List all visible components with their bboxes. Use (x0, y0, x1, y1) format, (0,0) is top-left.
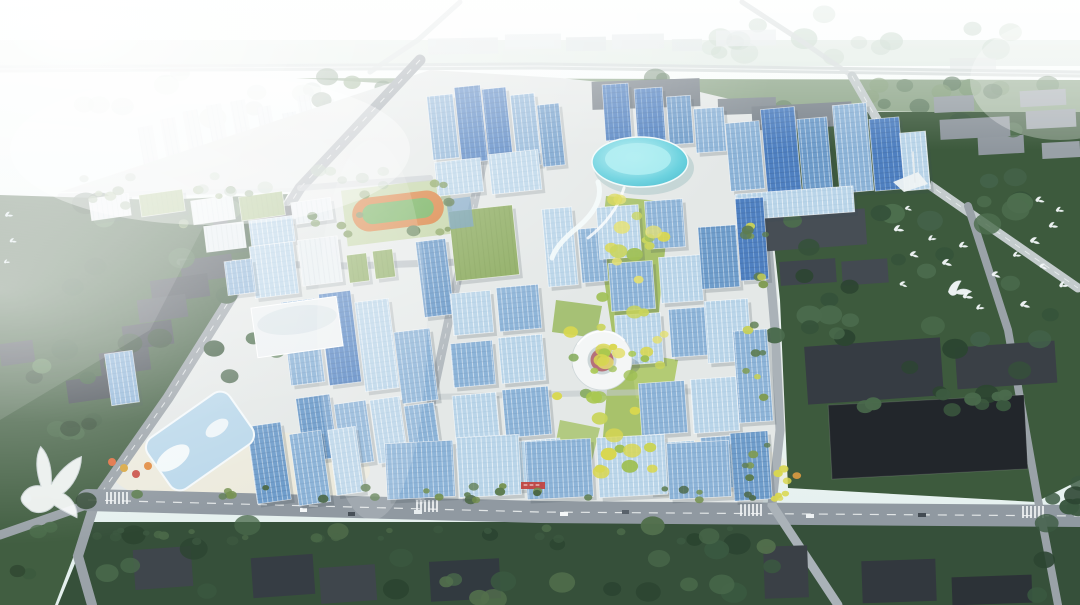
aerial-city-rendering (0, 0, 1080, 605)
campus-haze-streak (317, 140, 427, 520)
glare-layer (0, 0, 1080, 605)
city-aerial-rendering-canvas (0, 0, 1080, 605)
